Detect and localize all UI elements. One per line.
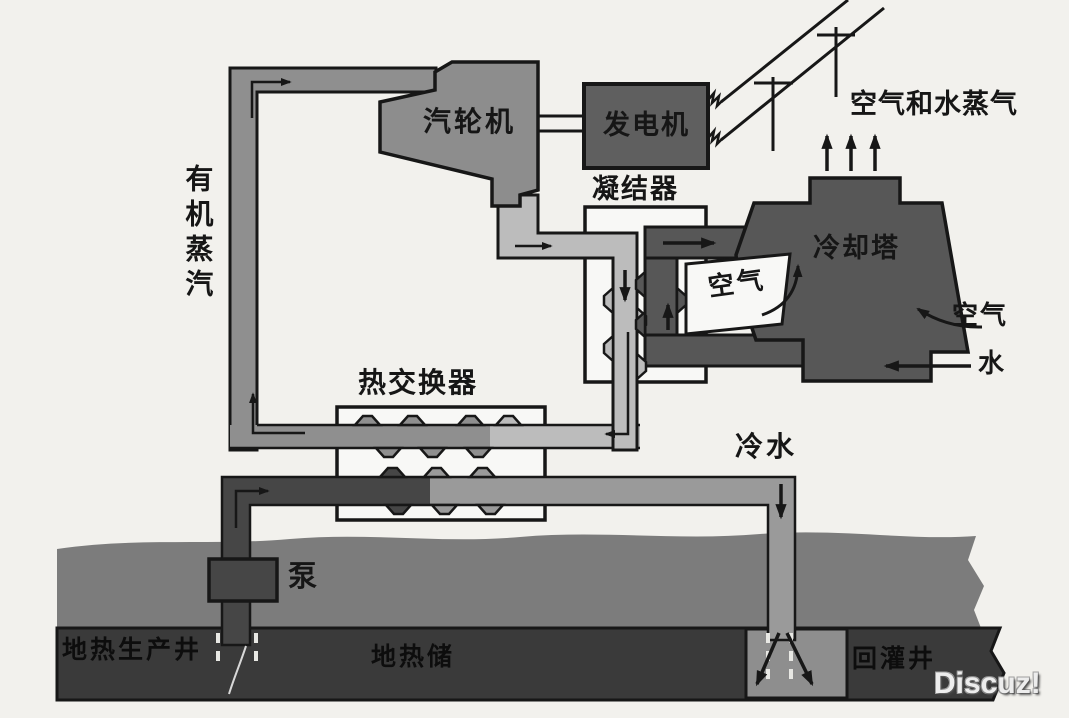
ground-layer [57, 532, 984, 628]
production-well-label: 地热生产井 [62, 637, 202, 663]
organic-vapor-label: 有机蒸汽 [183, 164, 212, 304]
reservoir-label: 地热储 [371, 644, 455, 670]
cold-water-label: 冷水 [735, 432, 797, 461]
injection-zone [746, 629, 847, 698]
pump-label: 泵 [288, 562, 317, 592]
injection-well-label: 回灌井 [852, 646, 936, 672]
hx-top-pipe [230, 425, 640, 448]
air-right-label: 空气 [952, 302, 1008, 329]
geothermal-plant-diagram: 有机蒸汽 汽轮机 发电机 凝结器 空气和水蒸气 冷却塔 空气 空气 水 热交换器… [0, 0, 1069, 718]
air-water-vapor-label: 空气和水蒸气 [850, 90, 1018, 118]
generator-label: 发电机 [603, 111, 690, 139]
watermark: Discuz! [934, 668, 1041, 700]
cooling-tower-label: 冷却塔 [813, 234, 900, 262]
water-label: 水 [978, 350, 1004, 377]
pump-box [209, 559, 277, 601]
condenser-label: 凝结器 [592, 175, 679, 203]
turbine-label: 汽轮机 [423, 107, 516, 136]
heat-exchanger-label: 热交换器 [358, 368, 478, 397]
